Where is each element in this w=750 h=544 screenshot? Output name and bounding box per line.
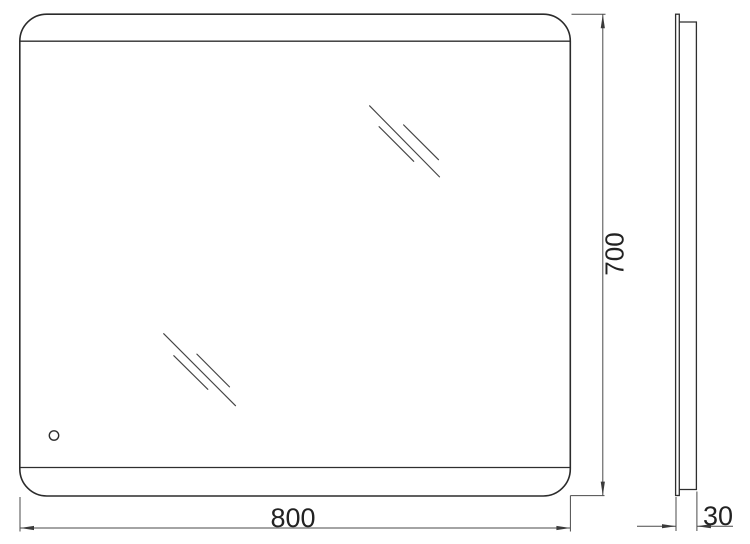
svg-text:700: 700 xyxy=(600,232,630,275)
svg-text:800: 800 xyxy=(270,503,315,533)
svg-text:30: 30 xyxy=(703,501,733,531)
